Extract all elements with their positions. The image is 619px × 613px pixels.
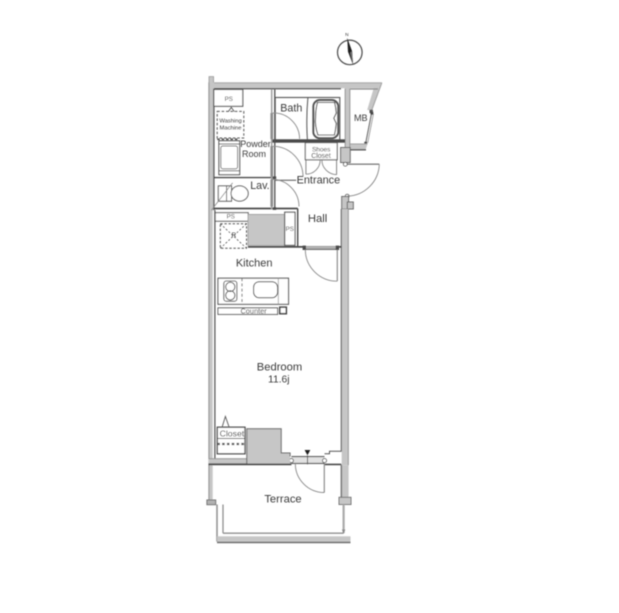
svg-text:Entrance: Entrance [297, 175, 341, 187]
svg-text:Hall: Hall [308, 213, 327, 225]
svg-text:Closet: Closet [311, 153, 331, 160]
svg-text:Powder: Powder [240, 139, 271, 149]
svg-text:MB: MB [354, 113, 368, 123]
svg-text:11.6j: 11.6j [268, 375, 290, 386]
svg-text:PS: PS [286, 226, 294, 233]
svg-text:Counter: Counter [240, 307, 267, 316]
svg-text:Washing: Washing [219, 118, 241, 124]
svg-text:Machine: Machine [220, 126, 242, 132]
svg-text:PS: PS [225, 96, 233, 103]
svg-text:Lav.: Lav. [250, 180, 269, 192]
svg-text:Bath: Bath [280, 103, 302, 115]
svg-text:PS: PS [227, 214, 235, 221]
svg-text:Room: Room [242, 149, 266, 159]
svg-text:Kitchen: Kitchen [236, 258, 273, 270]
svg-text:Terrace: Terrace [264, 494, 301, 506]
svg-text:R: R [231, 232, 236, 239]
svg-text:Closet: Closet [220, 429, 245, 439]
svg-text:Bedroom: Bedroom [257, 361, 302, 373]
svg-text:N: N [345, 32, 349, 38]
